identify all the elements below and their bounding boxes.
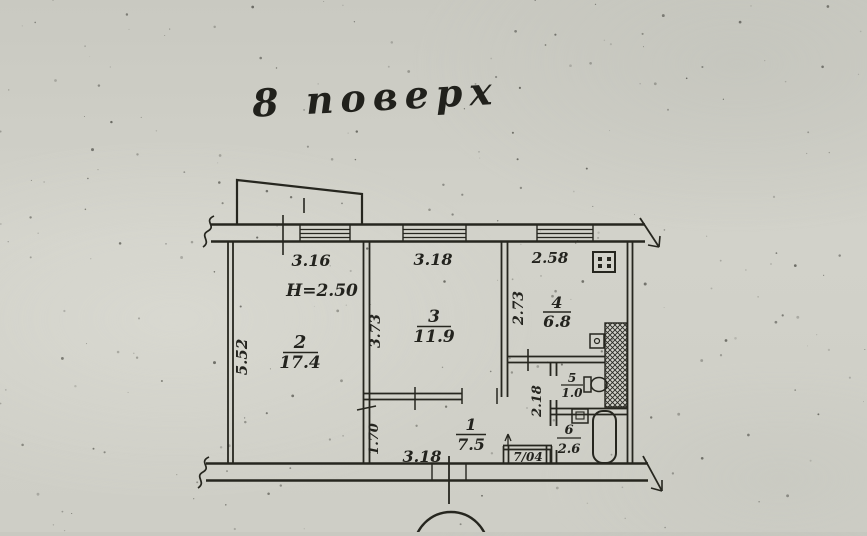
dim-bottom: 3.18	[403, 447, 442, 466]
dim-left: 5.52	[233, 339, 251, 376]
dim-top-2: 3.18	[414, 250, 453, 269]
wall-end-arrow	[643, 456, 662, 491]
dim-kitchen-side: 2.73	[511, 291, 527, 326]
svg-text:2.6: 2.6	[557, 442, 581, 457]
svg-text:11.9: 11.9	[413, 327, 455, 347]
svg-text:6.8: 6.8	[543, 312, 571, 331]
top-exterior-wall	[203, 215, 660, 255]
svg-text:7.5: 7.5	[457, 435, 485, 454]
window-icon	[537, 225, 593, 241]
room-labels: 2 17.4 3 11.9 4 6.8 1 7.5	[279, 293, 583, 464]
svg-text:1.0: 1.0	[562, 386, 584, 400]
svg-text:1: 1	[465, 415, 476, 434]
scanned-floor-plan-sheet: 8 поверх	[0, 0, 867, 532]
dim-room3-side: 3.73	[368, 314, 384, 348]
room-label-bedroom: 3 11.9	[413, 307, 455, 347]
room-label-closet: 7/04	[513, 450, 542, 464]
svg-text:17.4: 17.4	[279, 353, 320, 373]
room-label-corridor: 1 7.5	[456, 415, 486, 454]
break-symbol	[198, 457, 209, 488]
right-exterior-wall	[628, 242, 633, 463]
interior-wall-room3-kitchen	[502, 242, 508, 397]
window-icon	[300, 225, 350, 241]
bathtub-icon	[593, 411, 616, 463]
stamp-circle	[414, 512, 488, 532]
room-label-kitchen: 4 6.8	[543, 293, 571, 331]
stove-icon	[593, 252, 615, 272]
interior-wall-room3-corridor	[363, 387, 497, 410]
room-label-toilet: 5 1.0	[561, 371, 583, 400]
dim-top-1: 3.16	[292, 251, 331, 270]
room-label-bathroom: 6 2.6	[557, 423, 581, 457]
kitchen-sink-icon	[590, 334, 604, 348]
window-icon	[403, 225, 466, 241]
washbasin-icon	[572, 409, 588, 423]
ceiling-height-label: H=2.50	[285, 281, 358, 301]
toilet-icon	[584, 377, 607, 392]
dim-corridor-side: 1.70	[367, 423, 382, 455]
door-swing-mark	[505, 434, 511, 446]
room-label-living: 2 17.4	[279, 332, 320, 373]
vent-shaft	[605, 323, 627, 407]
dim-hall-side: 2.18	[530, 385, 545, 418]
svg-text:5: 5	[568, 371, 576, 385]
svg-text:2: 2	[293, 332, 307, 353]
balcony	[237, 180, 362, 225]
svg-text:3: 3	[428, 307, 440, 327]
dim-top-3: 2.58	[531, 249, 569, 267]
svg-text:6: 6	[564, 423, 573, 438]
svg-text:4: 4	[551, 293, 562, 312]
